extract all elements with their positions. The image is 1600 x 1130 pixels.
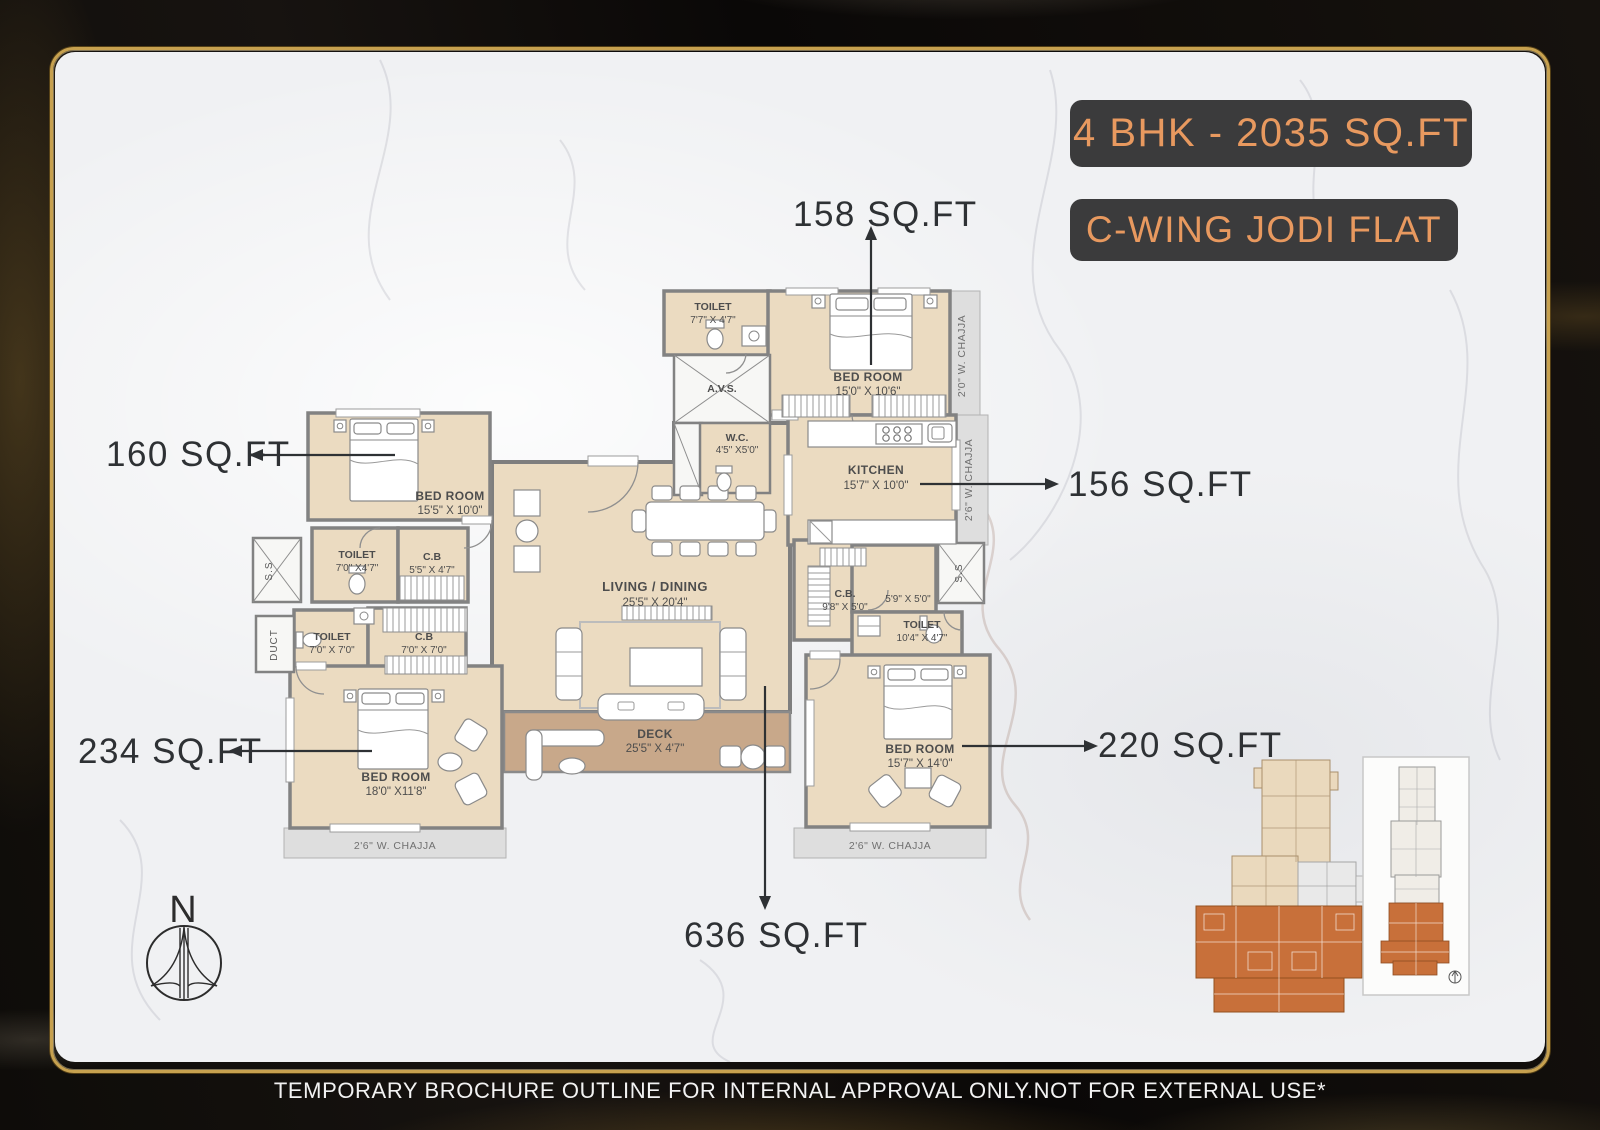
dims-deck: 25'5" X 4'7" [626,743,685,755]
disclaimer-text: TEMPORARY BROCHURE OUTLINE FOR INTERNAL … [0,1078,1600,1104]
sofa-main-icon [598,694,704,720]
label-bedroom-top: BED ROOM [833,370,902,384]
callout-bedroom-bl: 234 SQ.FT [78,732,263,771]
dims-toilet-right: 10'4" X 4'7" [897,633,948,644]
label-kitchen: KITCHEN [848,463,904,477]
north-compass: N [147,889,221,1000]
sofa-right-icon [720,628,746,700]
label-bedroom-left: BED ROOM [415,489,484,503]
callout-bedroom-left: 160 SQ.FT [106,435,291,474]
foyer-cabinet-icon [514,490,540,572]
sofa-left-icon [556,628,582,700]
dims-cb-left-lower: 7'0" X 7'0" [401,645,447,656]
dims-living: 25'5" X 20'4" [623,597,688,609]
label-deck: DECK [637,727,673,741]
dims-toilet-left-lower: 7'0" X 7'0" [309,645,355,656]
dims-cb-left-upper: 5'5" X 4'7" [409,565,455,576]
dims-cb-right: 9'8" X 5'0" [822,602,868,613]
brochure-page: TOILET 7'7" X 4'7" A.V.S. W.C. 4'5" X5'0… [0,0,1600,1130]
shaft-label-duct: DUCT [269,629,280,661]
label-toilet-left-lower: TOILET [313,631,351,643]
wing-badge: C-WING JODI FLAT [1070,199,1458,261]
label-bedroom-br: BED ROOM [885,742,954,756]
label-bedroom-bl: BED ROOM [361,770,430,784]
label-toilet-right: TOILET [903,619,941,631]
dims-store-right: 5'9" X 5'0" [885,594,931,605]
north-label: N [169,889,196,931]
label-avs: A.V.S. [707,383,736,395]
dims-bedroom-top: 15'0" X 10'6" [836,386,901,398]
unit-type-badge: 4 BHK - 2035 SQ.FT [1070,100,1472,167]
label-toilet-top: TOILET [694,301,732,313]
floor-plan-canvas: TOILET 7'7" X 4'7" A.V.S. W.C. 4'5" X5'0… [0,0,1600,1130]
label-living: LIVING / DINING [602,579,708,594]
shaft-label-ss-left: S.S [264,561,275,580]
label-wc: W.C. [726,432,749,444]
dims-bedroom-br: 15'7" X 14'0" [888,758,953,770]
label-cb-left-upper: C.B [423,551,442,563]
dims-bedroom-bl: 18'0" X11'8" [366,786,427,798]
label-cb-left-lower: C.B [415,631,434,643]
callout-kitchen: 156 SQ.FT [1068,465,1253,504]
dims-kitchen: 15'7" X 10'0" [844,480,909,492]
key-plan-floor [1196,760,1364,1012]
callout-bedroom-br: 220 SQ.FT [1098,726,1283,765]
chajja-kitchen-right: 2'6" W. CHAJJA [963,439,975,521]
callout-bedroom-top: 158 SQ.FT [793,195,978,234]
key-plan-tower [1363,757,1469,995]
dims-wc: 4'5" X5'0" [716,445,759,456]
dims-toilet-top: 7'7" X 4'7" [690,315,736,326]
label-cb-right: C.B. [835,588,856,600]
coffee-table-icon [630,648,702,686]
floor-plan: TOILET 7'7" X 4'7" A.V.S. W.C. 4'5" X5'0… [78,195,1283,955]
chajja-bottom-right: 2'6" W. CHAJJA [849,840,931,852]
label-toilet-left-upper: TOILET [338,549,376,561]
shaft-label-ss-right: S.S [954,563,965,582]
dims-toilet-left-upper: 7'0" X4'7" [336,563,379,574]
chajja-top-right: 2'0" W. CHAJJA [956,315,968,397]
dims-bedroom-left: 15'5" X 10'0" [418,505,483,517]
callout-living-deck: 636 SQ.FT [684,916,869,955]
chajja-bottom-left: 2'6" W. CHAJJA [354,840,436,852]
